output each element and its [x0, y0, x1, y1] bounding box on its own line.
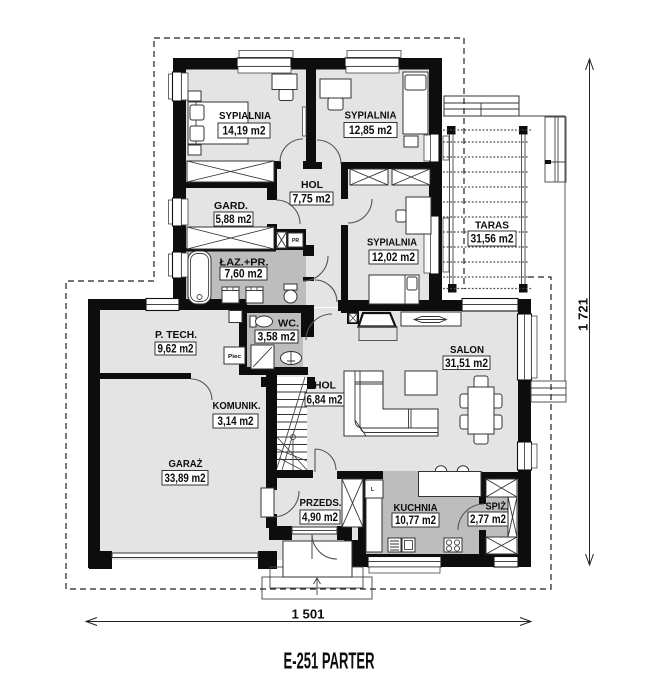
svg-text:GARAŻ: GARAŻ: [169, 457, 203, 470]
svg-text:E-251 PARTER: E-251 PARTER: [284, 648, 375, 674]
svg-text:SYPIALNIA: SYPIALNIA: [219, 111, 271, 122]
svg-text:P. TECH.: P. TECH.: [155, 330, 197, 341]
svg-text:1 501: 1 501: [292, 607, 325, 622]
svg-text:TARAS: TARAS: [475, 221, 509, 232]
svg-text:L: L: [371, 487, 374, 493]
svg-text:SYPIALNIA: SYPIALNIA: [367, 238, 417, 249]
svg-text:10,77 m2: 10,77 m2: [395, 513, 436, 527]
svg-text:6,84 m2: 6,84 m2: [307, 393, 343, 407]
svg-text:PRZEDS.: PRZEDS.: [300, 498, 342, 509]
svg-text:SALON: SALON: [450, 345, 484, 356]
svg-text:2,77 m2: 2,77 m2: [470, 512, 506, 526]
svg-text:7,60 m2: 7,60 m2: [225, 267, 263, 281]
svg-text:31,56 m2: 31,56 m2: [471, 232, 514, 246]
svg-text:14,19 m2: 14,19 m2: [223, 124, 266, 138]
svg-text:3,14 m2: 3,14 m2: [218, 414, 254, 428]
svg-text:HOL: HOL: [301, 180, 323, 191]
svg-text:WC.: WC.: [278, 319, 299, 330]
svg-text:12,85 m2: 12,85 m2: [349, 123, 392, 137]
svg-text:7,75 m2: 7,75 m2: [293, 192, 331, 206]
svg-text:31,51 m2: 31,51 m2: [445, 356, 488, 370]
svg-text:5,88 m2: 5,88 m2: [216, 212, 252, 226]
svg-text:1 721: 1 721: [576, 298, 591, 331]
svg-text:33,89 m2: 33,89 m2: [165, 471, 206, 485]
svg-text:3,58 m2: 3,58 m2: [258, 330, 296, 344]
svg-text:12,02 m2: 12,02 m2: [372, 250, 415, 264]
svg-text:SPIŻ.: SPIŻ.: [486, 500, 509, 513]
svg-text:Piec: Piec: [228, 354, 241, 360]
svg-text:SYPIALNIA: SYPIALNIA: [345, 111, 397, 122]
svg-text:4,90 m2: 4,90 m2: [302, 510, 338, 524]
svg-text:9,62 m2: 9,62 m2: [158, 342, 194, 356]
svg-text:PR: PR: [292, 238, 299, 244]
svg-text:GARD.: GARD.: [214, 201, 248, 212]
svg-text:KOMUNIK.: KOMUNIK.: [213, 401, 261, 412]
svg-text:HOL: HOL: [314, 381, 336, 392]
